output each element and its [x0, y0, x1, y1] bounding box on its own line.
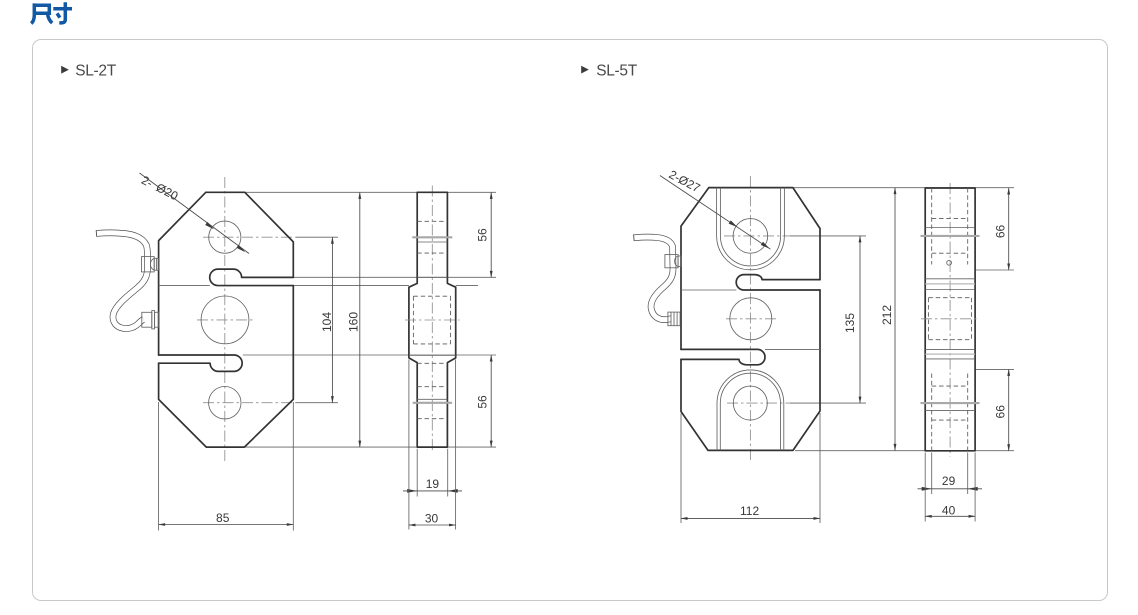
svg-text:19: 19 [426, 477, 440, 491]
svg-text:112: 112 [740, 504, 759, 518]
svg-text:56: 56 [476, 228, 490, 242]
svg-text:56: 56 [476, 395, 490, 409]
svg-text:29: 29 [942, 474, 956, 488]
svg-text:40: 40 [942, 503, 956, 517]
svg-text:2- Ø20: 2- Ø20 [139, 173, 180, 203]
svg-text:85: 85 [216, 511, 230, 525]
svg-text:66: 66 [994, 225, 1008, 239]
svg-text:SL-5T: SL-5T [596, 62, 638, 79]
svg-text:30: 30 [425, 511, 439, 525]
svg-text:212: 212 [880, 305, 894, 325]
svg-text:160: 160 [347, 312, 361, 332]
svg-text:135: 135 [843, 313, 857, 333]
svg-text:104: 104 [320, 312, 334, 332]
svg-text:66: 66 [994, 405, 1008, 419]
svg-text:SL-2T: SL-2T [75, 62, 117, 79]
svg-text:2-Ø27: 2-Ø27 [667, 167, 703, 195]
